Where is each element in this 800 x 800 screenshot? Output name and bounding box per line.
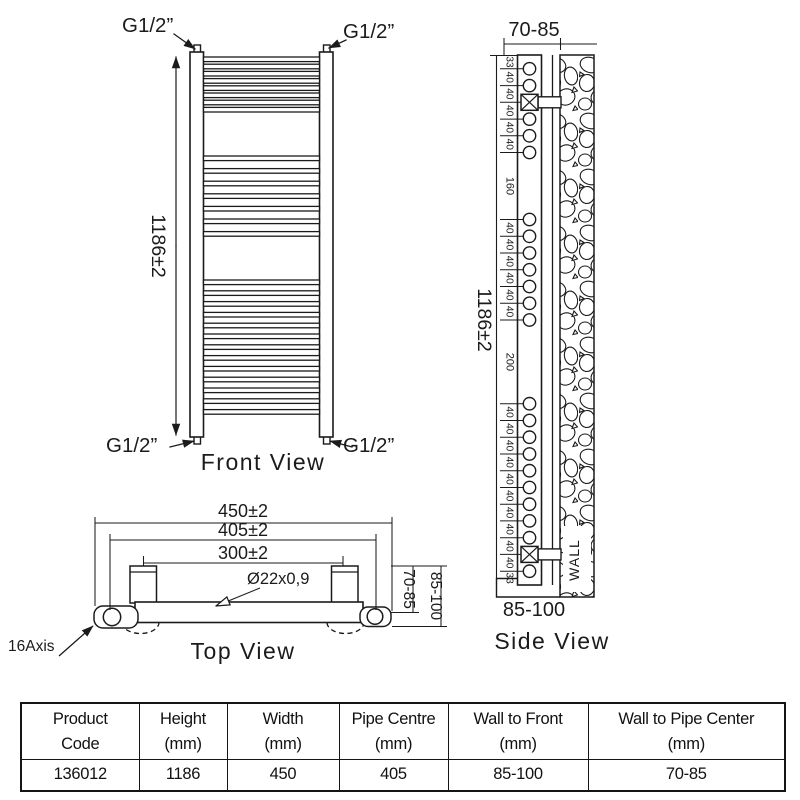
- side-height-label: 1186±2: [473, 288, 495, 351]
- chain-dim-label: 40: [504, 256, 515, 268]
- bar-end-circle: [523, 146, 535, 158]
- dim-pipe-centres: 405±2: [218, 520, 268, 540]
- left-mount-hole: [103, 608, 120, 625]
- chain-dim-label: 40: [503, 88, 514, 100]
- value-product-code: 136012: [21, 759, 139, 791]
- towel-bar: [204, 377, 320, 382]
- bar-end-circle: [523, 565, 535, 577]
- towel-bar: [204, 410, 320, 415]
- towel-bar: [204, 388, 320, 393]
- chain-dim-label: 40: [503, 406, 514, 418]
- table-header-row: ProductCode Height(mm) Width(mm) Pipe Ce…: [21, 703, 785, 759]
- right-mount-hole: [367, 609, 383, 625]
- fitting-label-bottom-left: G1/2”: [106, 434, 157, 457]
- tube-spec-label: Ø22x0,9: [247, 570, 309, 588]
- value-wall-to-front: 85-100: [448, 759, 588, 791]
- front-view: 1186±2 G1/2” G1/2” G1/2” G1/2” Front Vie…: [106, 14, 394, 475]
- right-rail: [320, 52, 334, 437]
- bar-end-circle: [523, 113, 535, 125]
- wall-bracket-arm: [538, 549, 561, 560]
- col-header-wall-to-front: Wall to Front(mm): [448, 703, 588, 759]
- chain-dim-label: 40: [503, 423, 514, 435]
- chain-dim-label: 40: [503, 239, 514, 251]
- towel-bar: [204, 291, 320, 296]
- bar-end-circle: [523, 230, 535, 242]
- table-value-row: 136012 1186 450 405 85-100 70-85: [21, 759, 785, 791]
- dim-wall-to-front: 85-100: [427, 572, 444, 621]
- bar-end-circle: [523, 465, 535, 477]
- towel-bar: [204, 219, 320, 224]
- fitting-label-top-left: G1/2”: [122, 14, 173, 37]
- towel-bar: [204, 280, 320, 285]
- spec-table: ProductCode Height(mm) Width(mm) Pipe Ce…: [20, 702, 786, 792]
- chain-dim-label: 160: [503, 177, 515, 195]
- chain-dim-label: 200: [504, 353, 516, 371]
- towel-bar: [204, 194, 320, 199]
- cross-tube: [135, 602, 363, 623]
- chain-dim-label: 40: [503, 557, 514, 569]
- fitting-label-bottom-right: G1/2”: [343, 434, 394, 457]
- fitting-label-top-right: G1/2”: [343, 20, 394, 43]
- value-wall-to-pipe-center: 70-85: [588, 759, 785, 791]
- towel-bar: [204, 156, 320, 161]
- chain-dim-label: 40: [504, 440, 515, 452]
- wall-bracket-arm: [538, 97, 561, 108]
- wall: WALL: [560, 55, 594, 597]
- side-dim-wall-to-pipe: 70-85: [508, 19, 559, 41]
- value-height: 1186: [139, 759, 227, 791]
- bar-end-circle: [523, 515, 535, 527]
- col-header-width: Width(mm): [227, 703, 339, 759]
- towel-bar: [204, 100, 320, 105]
- bar-end-circle: [523, 280, 535, 292]
- bar-end-circle: [523, 79, 535, 91]
- chain-dim-label: 40: [503, 524, 514, 536]
- bar-end-circle: [523, 414, 535, 426]
- col-header-height: Height(mm): [139, 703, 227, 759]
- value-pipe-centre: 405: [339, 759, 448, 791]
- towel-bar: [204, 399, 320, 404]
- chain-dim-label: 40: [504, 139, 515, 151]
- top-view-caption: Top View: [191, 638, 296, 664]
- hidden-rail-arc-right: [327, 623, 364, 634]
- chain-dim-label: 40: [504, 540, 515, 552]
- towel-bar: [204, 64, 320, 69]
- bar-end-circle: [523, 431, 535, 443]
- bar-end-circle: [523, 264, 535, 276]
- bar-end-circle: [523, 448, 535, 460]
- side-dim-wall-to-front: 85-100: [503, 599, 565, 621]
- left-rail: [190, 52, 204, 437]
- towel-bar: [204, 169, 320, 174]
- axis-label: 16Axis: [8, 638, 55, 655]
- bar-end-circle: [523, 130, 535, 142]
- towel-bar: [204, 93, 320, 98]
- towel-bar: [204, 323, 320, 328]
- chain-dim-label: 40: [503, 122, 514, 134]
- towel-bar: [204, 107, 320, 112]
- towel-bar: [204, 79, 320, 84]
- chain-dim-label: 40: [504, 289, 515, 301]
- chain-dim-label: 40: [504, 507, 515, 519]
- towel-bar: [204, 86, 320, 91]
- chain-dim-label: 40: [504, 222, 515, 234]
- bar-end-circle: [523, 63, 535, 75]
- height-dimension: 1186±2: [147, 57, 176, 435]
- wall-label: WALL: [566, 539, 582, 581]
- front-view-caption: Front View: [201, 449, 326, 475]
- chain-dim-label: 40: [504, 105, 515, 117]
- towel-bar: [204, 302, 320, 307]
- bar-end-circle: [523, 314, 535, 326]
- side-view: WALL 70-85 1186±2 3340404040401604040404…: [473, 19, 610, 654]
- towel-bar: [204, 334, 320, 339]
- towel-bar: [204, 71, 320, 76]
- dim-overall-width: 450±2: [218, 501, 268, 521]
- towel-bar: [204, 206, 320, 211]
- technical-drawing: 1186±2 G1/2” G1/2” G1/2” G1/2” Front Vie…: [0, 0, 800, 700]
- bar-end-circle: [523, 213, 535, 225]
- chain-dim-label: 40: [503, 272, 514, 284]
- chain-dim-label: 40: [503, 457, 514, 469]
- dim-bracket-centres: 300±2: [218, 543, 268, 563]
- chain-dim-label: 40: [503, 306, 514, 318]
- side-view-caption: Side View: [494, 628, 609, 654]
- value-width: 450: [227, 759, 339, 791]
- front-height-label: 1186±2: [147, 214, 169, 277]
- top-view: 450±2 405±2 300±2 Ø22x0,9 70-85 85-100 1…: [8, 501, 447, 664]
- col-header-wall-to-pipe-center: Wall to Pipe Center(mm): [588, 703, 785, 759]
- bar-end-circle: [523, 532, 535, 544]
- bar-end-circle: [523, 297, 535, 309]
- dim-wall-to-pipe: 70-85: [400, 569, 417, 609]
- bar-end-circle: [523, 498, 535, 510]
- chain-dim-label: 40: [504, 473, 515, 485]
- col-header-pipe-centre: Pipe Centre(mm): [339, 703, 448, 759]
- col-header-product-code: ProductCode: [21, 703, 139, 759]
- towel-bar: [204, 232, 320, 237]
- radiator-spec-sheet: 1186±2 G1/2” G1/2” G1/2” G1/2” Front Vie…: [0, 0, 800, 800]
- towel-bar: [204, 366, 320, 371]
- towel-bar: [204, 312, 320, 317]
- chain-dim-label: 40: [503, 490, 514, 502]
- chain-dim-label: 33: [503, 56, 514, 68]
- towel-bars: [204, 57, 320, 414]
- towel-bar: [204, 57, 320, 62]
- bar-end-circle: [523, 247, 535, 259]
- bar-end-circle: [523, 398, 535, 410]
- towel-bar: [204, 345, 320, 350]
- towel-bar: [204, 181, 320, 186]
- bar-end-circle: [523, 481, 535, 493]
- towel-bar: [204, 356, 320, 361]
- chain-dim-label: 40: [504, 72, 515, 84]
